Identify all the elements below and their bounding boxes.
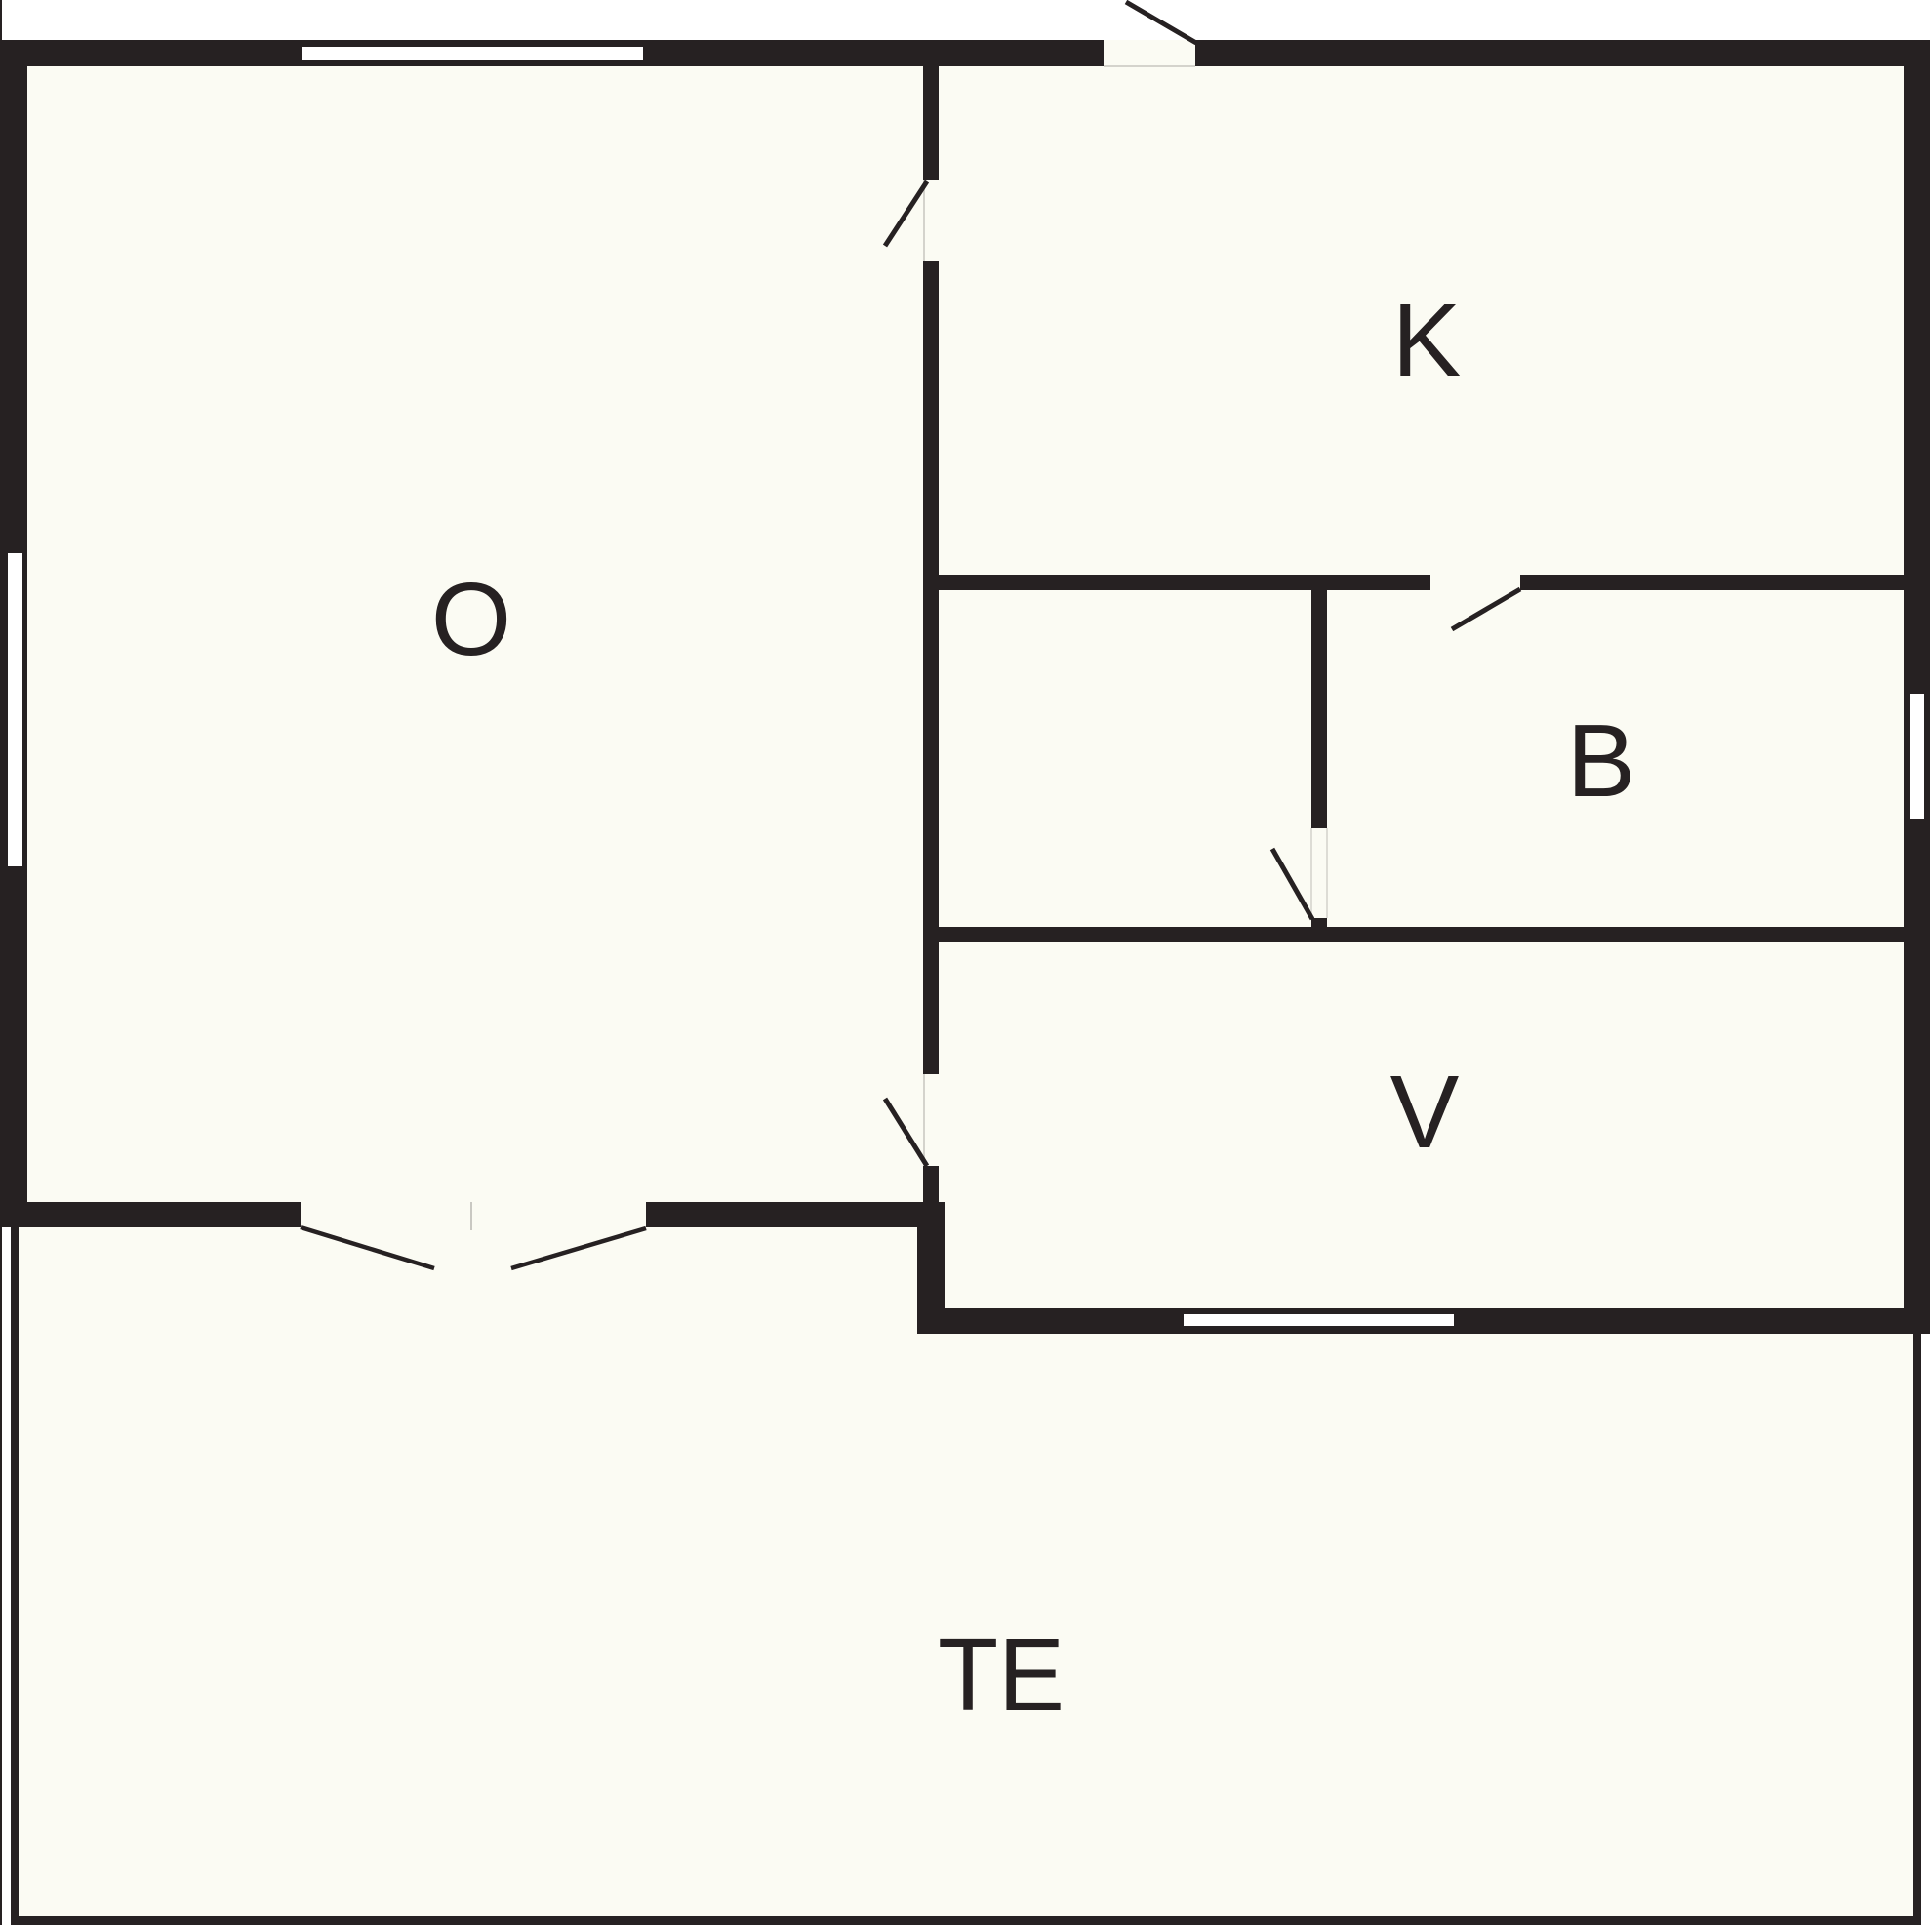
svg-text:V: V bbox=[1390, 1055, 1460, 1170]
svg-text:TE: TE bbox=[938, 1618, 1065, 1733]
svg-text:K: K bbox=[1392, 283, 1462, 398]
svg-text:B: B bbox=[1567, 703, 1636, 819]
svg-text:O: O bbox=[431, 562, 511, 677]
